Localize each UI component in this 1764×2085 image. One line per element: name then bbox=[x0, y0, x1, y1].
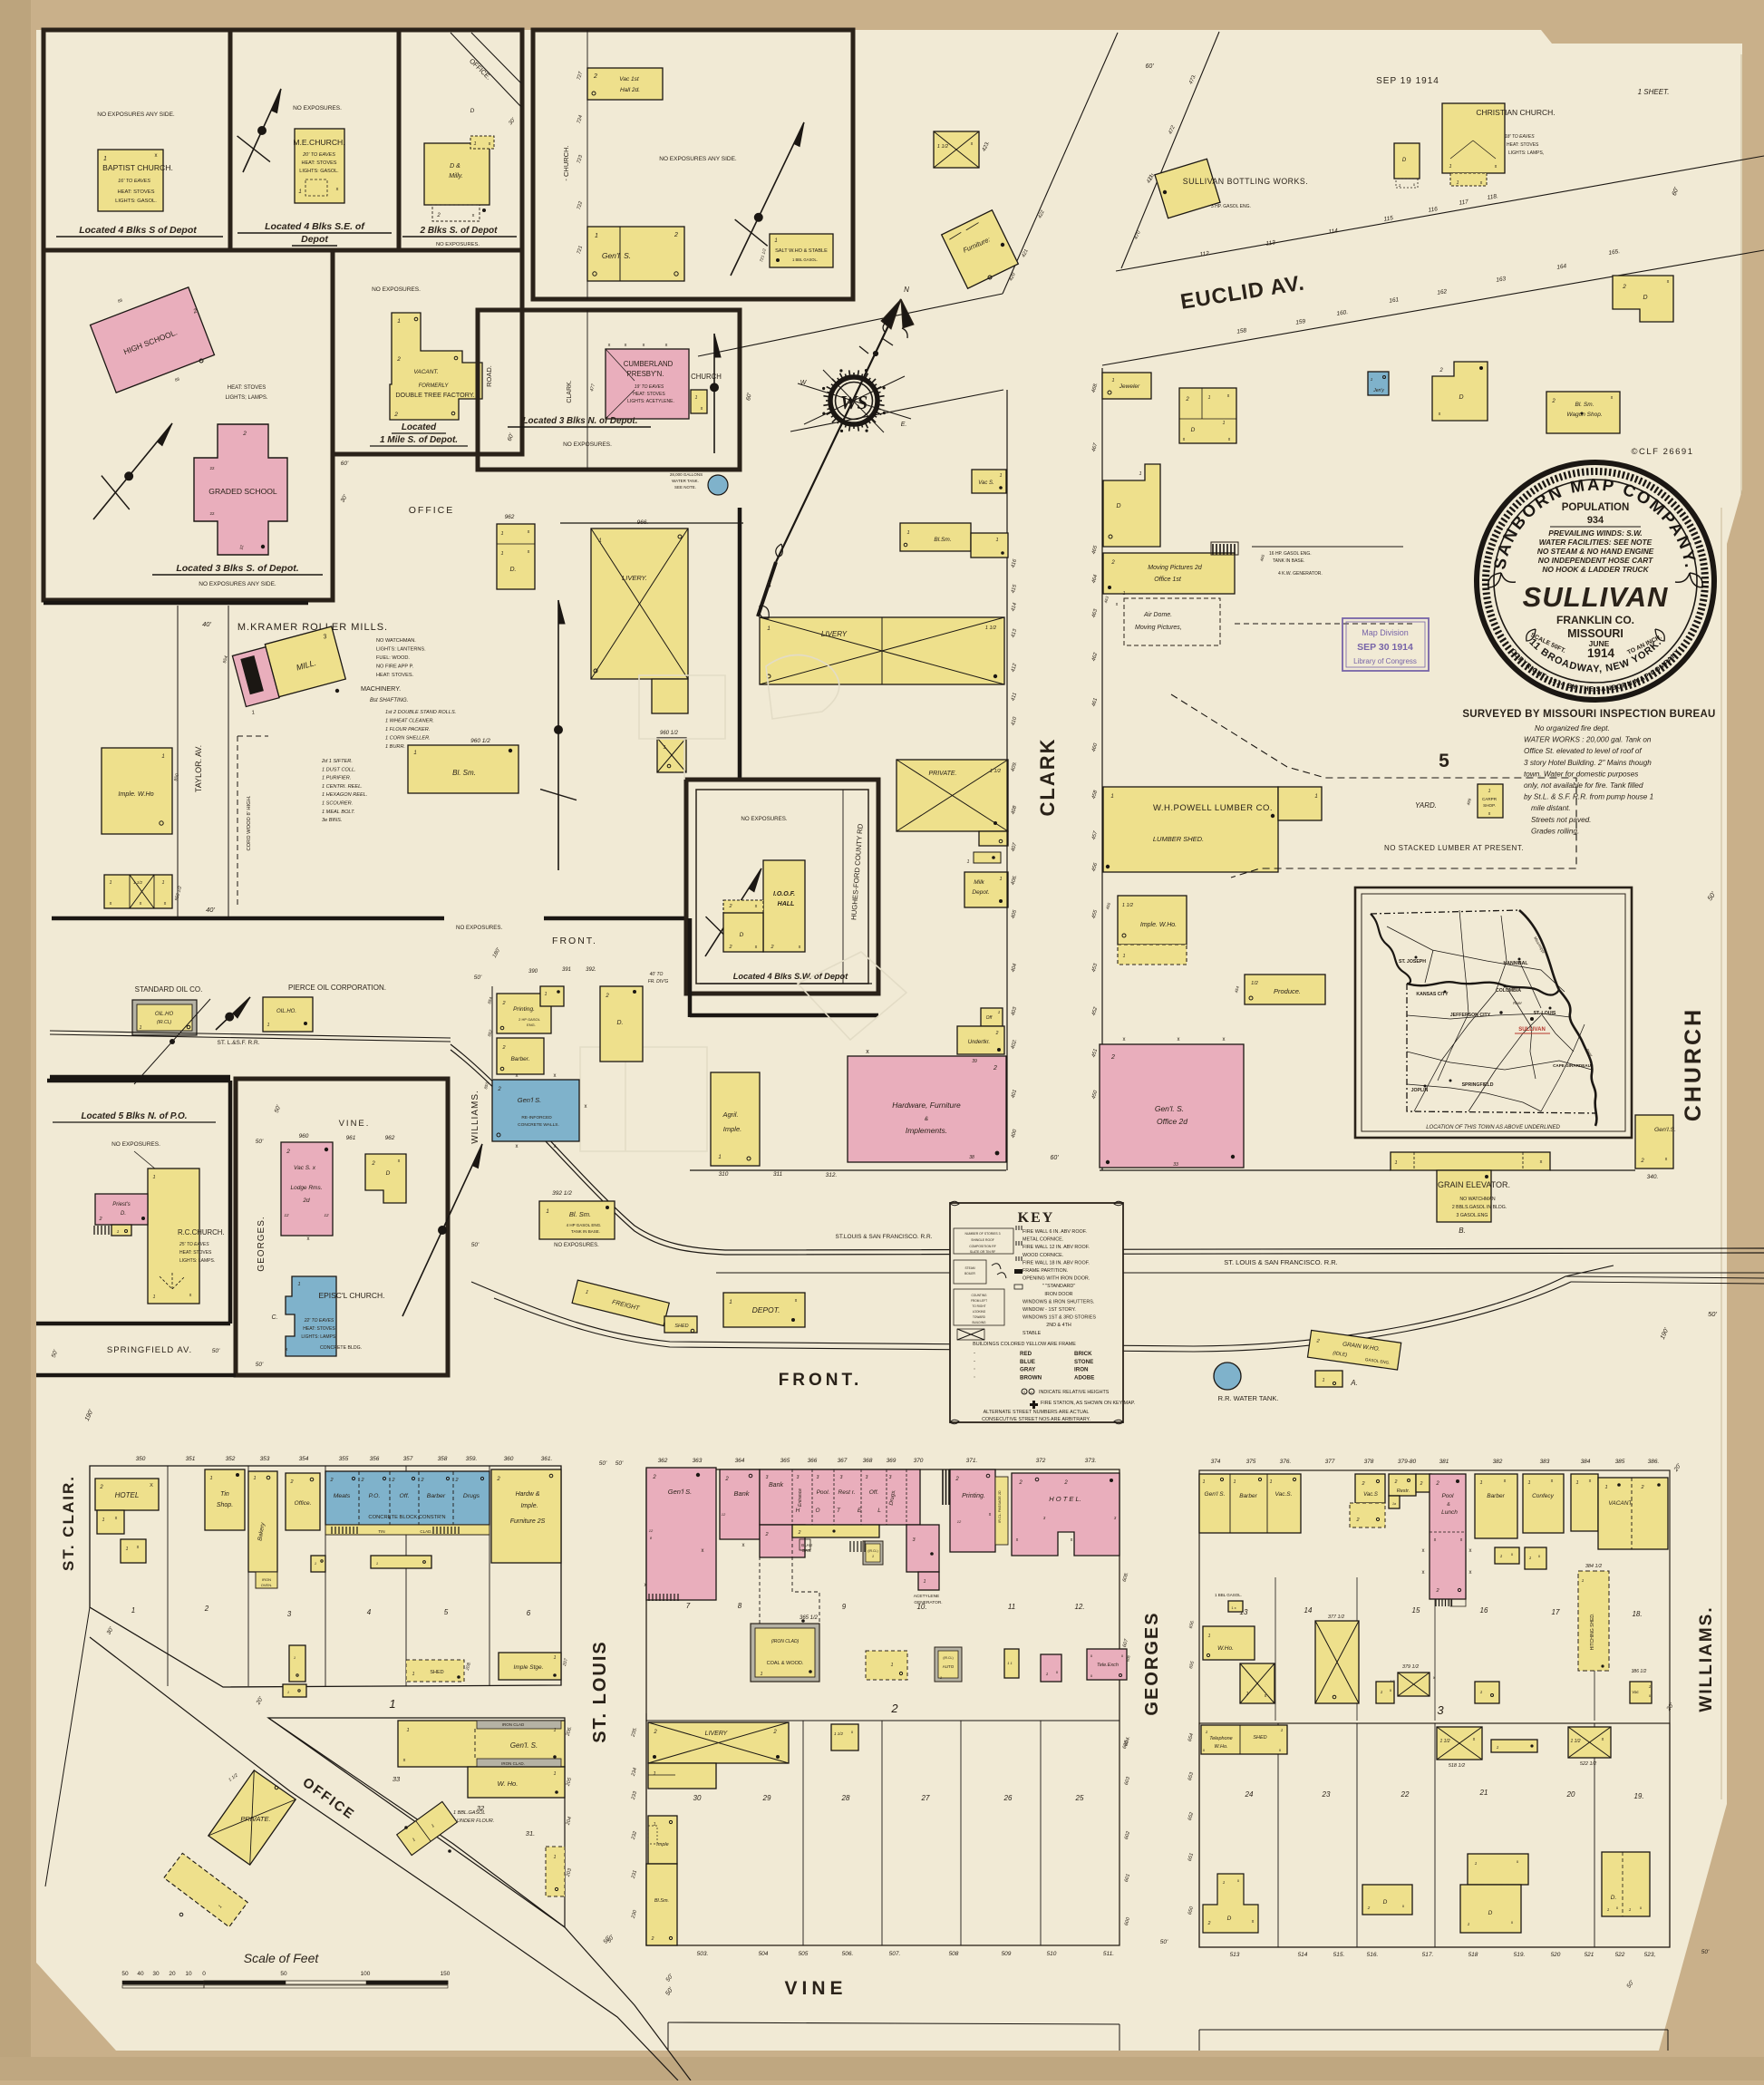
svg-text:384 1/2: 384 1/2 bbox=[1585, 1564, 1602, 1569]
svg-text:(IR.CL): (IR.CL) bbox=[943, 1656, 953, 1660]
svg-text:FRONT.: FRONT. bbox=[552, 936, 597, 946]
svg-text:YARD.: YARD. bbox=[1415, 801, 1437, 810]
svg-text:L: L bbox=[877, 1508, 881, 1514]
svg-text:Barber: Barber bbox=[1487, 1493, 1505, 1499]
svg-text:KEY: KEY bbox=[1018, 1210, 1055, 1226]
svg-text:386 1/2: 386 1/2 bbox=[1632, 1669, 1647, 1674]
svg-text:I.O.O.F.: I.O.O.F. bbox=[773, 891, 795, 897]
svg-text:10.: 10. bbox=[916, 1603, 926, 1611]
svg-text:R.R. WATER TANK.: R.R. WATER TANK. bbox=[1218, 1394, 1279, 1402]
svg-text:2: 2 bbox=[371, 1161, 375, 1167]
svg-text:4 K.W. GENERATOR.: 4 K.W. GENERATOR. bbox=[1278, 571, 1323, 577]
svg-text:5: 5 bbox=[1439, 751, 1449, 771]
svg-text:Vac.S: Vac.S bbox=[1363, 1492, 1378, 1498]
svg-text:Located 4 Blks S.E. of: Located 4 Blks S.E. of bbox=[265, 221, 365, 232]
svg-text:LIGHTS: LANTERNS.: LIGHTS: LANTERNS. bbox=[376, 647, 426, 653]
svg-text:LIGHTS: LAMPS.: LIGHTS: LAMPS. bbox=[179, 1258, 215, 1264]
svg-text:1: 1 bbox=[209, 1476, 212, 1481]
svg-text:D: D bbox=[1459, 394, 1463, 401]
svg-text:1: 1 bbox=[102, 1518, 105, 1523]
svg-text:1: 1 bbox=[663, 745, 665, 751]
svg-text:1 1/2: 1 1/2 bbox=[1570, 1739, 1580, 1744]
svg-text:1: 1 bbox=[131, 1606, 135, 1615]
svg-text:1: 1 bbox=[1479, 1480, 1482, 1486]
svg-text:50': 50' bbox=[1708, 1310, 1717, 1318]
svg-text:1: 1 bbox=[253, 1476, 256, 1481]
svg-text:508: 508 bbox=[949, 1951, 959, 1957]
svg-text:511.: 511. bbox=[1103, 1951, 1114, 1957]
svg-text:3: 3 bbox=[287, 1610, 292, 1618]
svg-text:1 WHEAT CLEANER.: 1 WHEAT CLEANER. bbox=[385, 719, 434, 724]
svg-text:IR.CL. PASSAGE 2D: IR.CL. PASSAGE 2D bbox=[998, 1490, 1002, 1523]
svg-text:STEAM: STEAM bbox=[965, 1266, 975, 1270]
svg-text:ALTERNATE STREET NUMBERS ARE A: ALTERNATE STREET NUMBERS ARE ACTUAL bbox=[984, 1410, 1090, 1415]
svg-text:SALT W.HO & STABLE: SALT W.HO & STABLE bbox=[775, 248, 828, 254]
svg-text:WINDOWS & IRON SHUTTERS.: WINDOWS & IRON SHUTTERS. bbox=[1023, 1299, 1094, 1304]
svg-text:1 HEXAGON REEL.: 1 HEXAGON REEL. bbox=[322, 792, 367, 798]
svg-text:509: 509 bbox=[1002, 1951, 1012, 1957]
svg-text:NO EXPOSURES.: NO EXPOSURES. bbox=[111, 1141, 160, 1148]
svg-text:1: 1 bbox=[761, 1672, 763, 1677]
svg-text:506.: 506. bbox=[842, 1951, 854, 1957]
svg-text:COAL & WOOD.: COAL & WOOD. bbox=[767, 1661, 804, 1666]
svg-text:310: 310 bbox=[719, 1171, 729, 1178]
svg-text:2: 2 bbox=[496, 1477, 500, 1482]
svg-text:NO EXPOSURES.: NO EXPOSURES. bbox=[554, 1243, 599, 1248]
svg-text:x: x bbox=[554, 1144, 557, 1149]
svg-text:3 HP. GASOL ENG.: 3 HP. GASOL ENG. bbox=[1211, 204, 1251, 209]
svg-text:20: 20 bbox=[1566, 1790, 1575, 1799]
svg-text:522: 522 bbox=[1615, 1952, 1625, 1958]
svg-text:BAPTIST CHURCH.: BAPTIST CHURCH. bbox=[102, 163, 173, 172]
svg-text:1: 1 bbox=[554, 1855, 557, 1860]
svg-text:Imple. W.Ho.: Imple. W.Ho. bbox=[1140, 922, 1177, 928]
svg-text:1: 1 bbox=[545, 992, 548, 997]
svg-text:6: 6 bbox=[527, 1609, 531, 1617]
svg-text:1: 1 bbox=[653, 1771, 655, 1777]
svg-text:INDICATE RELATIVE HEIGHTS: INDICATE RELATIVE HEIGHTS bbox=[1039, 1390, 1110, 1395]
svg-text:934: 934 bbox=[1587, 515, 1604, 526]
svg-text:W.Ho.: W.Ho. bbox=[1214, 1744, 1227, 1750]
svg-text:FRANKLIN CO.: FRANKLIN CO. bbox=[1556, 614, 1634, 626]
svg-text:CARPR: CARPR bbox=[1482, 797, 1497, 801]
svg-text:38: 38 bbox=[969, 1155, 974, 1160]
svg-text:x: x bbox=[155, 153, 158, 159]
svg-text:2: 2 bbox=[1018, 1480, 1023, 1486]
svg-text:FIRE WALL 6 IN. ABV ROOF.: FIRE WALL 6 IN. ABV ROOF. bbox=[1023, 1229, 1087, 1235]
svg-text:16: 16 bbox=[1480, 1606, 1488, 1615]
svg-text:1: 1 bbox=[774, 238, 777, 244]
svg-text:50': 50' bbox=[256, 1362, 264, 1368]
svg-text:Vac S. x: Vac S. x bbox=[294, 1165, 316, 1171]
svg-text:14: 14 bbox=[1304, 1606, 1313, 1615]
svg-text:22' TO EAVES: 22' TO EAVES bbox=[304, 1318, 334, 1324]
svg-text:Produce.: Produce. bbox=[1274, 987, 1301, 995]
svg-text:2: 2 bbox=[396, 356, 401, 363]
svg-text:503.: 503. bbox=[697, 1951, 709, 1957]
svg-text:Tin: Tin bbox=[220, 1491, 229, 1498]
svg-text:MISSOURI: MISSOURI bbox=[1567, 627, 1623, 640]
svg-text:LIGHTS: LAMPS,: LIGHTS: LAMPS, bbox=[1508, 150, 1544, 156]
svg-text:Streets not paved.: Streets not paved. bbox=[1531, 816, 1591, 824]
svg-text:Gen'l S.: Gen'l S. bbox=[518, 1096, 541, 1104]
svg-text:(IR.CL): (IR.CL) bbox=[867, 1549, 877, 1553]
svg-text:Milly.: Milly. bbox=[449, 173, 462, 179]
svg-text:1: 1 bbox=[297, 1282, 300, 1287]
svg-text:Located 4 Blks S of Depot: Located 4 Blks S of Depot bbox=[79, 225, 197, 236]
svg-text:2: 2 bbox=[593, 73, 597, 80]
svg-text:CONCRETE WALLS.: CONCRETE WALLS. bbox=[518, 1122, 559, 1128]
svg-text:D.: D. bbox=[510, 567, 517, 573]
svg-text:1: 1 bbox=[1110, 794, 1113, 800]
svg-text:3 GASOL.ENG: 3 GASOL.ENG bbox=[1457, 1213, 1488, 1218]
svg-text:1: 1 bbox=[546, 1209, 548, 1215]
svg-text:SPRINGFIELD: SPRINGFIELD bbox=[1462, 1082, 1494, 1088]
svg-text:370: 370 bbox=[914, 1458, 924, 1464]
svg-text:x: x bbox=[403, 1758, 406, 1763]
svg-text:LOOKING: LOOKING bbox=[973, 1310, 986, 1314]
svg-text:518 1/2: 518 1/2 bbox=[1449, 1763, 1465, 1769]
svg-text:361.: 361. bbox=[541, 1456, 553, 1462]
svg-text:371.: 371. bbox=[966, 1458, 978, 1464]
svg-text:D: D bbox=[1191, 427, 1196, 433]
svg-text:25: 25 bbox=[1075, 1794, 1084, 1802]
svg-text:Off.: Off. bbox=[869, 1489, 879, 1496]
svg-text:Bst SHAFTING.: Bst SHAFTING. bbox=[370, 698, 408, 703]
svg-text:Gen'l.S.: Gen'l.S. bbox=[1654, 1127, 1676, 1133]
svg-text:D.: D. bbox=[617, 1020, 624, 1026]
svg-text:40': 40' bbox=[202, 620, 211, 628]
svg-text:2: 2 bbox=[501, 1045, 505, 1051]
svg-text:ST. LOUIS: ST. LOUIS bbox=[590, 1640, 610, 1743]
svg-text:379 1/2: 379 1/2 bbox=[1402, 1664, 1419, 1670]
svg-text:2: 2 bbox=[1439, 368, 1443, 373]
svg-text:517.: 517. bbox=[1422, 1952, 1434, 1958]
svg-text:TOWARD: TOWARD bbox=[973, 1315, 986, 1319]
svg-text:Lodge Rms.: Lodge Rms. bbox=[290, 1185, 322, 1191]
svg-text:Jen'y: Jen'y bbox=[1372, 388, 1384, 393]
svg-text:1: 1 bbox=[967, 859, 970, 865]
svg-text:NO FIRE APP P.: NO FIRE APP P. bbox=[376, 664, 414, 670]
svg-text:GRADED SCHOOL: GRADED SCHOOL bbox=[208, 487, 277, 496]
svg-text:363: 363 bbox=[693, 1458, 703, 1464]
svg-text:2 HP GASOL: 2 HP GASOL bbox=[519, 1017, 540, 1022]
svg-text:1/2: 1/2 bbox=[1251, 981, 1258, 986]
svg-text:HEAT: STOVES: HEAT: STOVES bbox=[117, 189, 154, 195]
svg-text:D: D bbox=[1116, 503, 1120, 509]
svg-text:9: 9 bbox=[842, 1603, 847, 1611]
svg-text:TANK IN BASE.: TANK IN BASE. bbox=[571, 1229, 600, 1234]
svg-text:1: 1 bbox=[1457, 180, 1459, 186]
svg-text:505: 505 bbox=[799, 1951, 809, 1957]
svg-text:31.: 31. bbox=[526, 1829, 535, 1838]
svg-text:OIL.HO: OIL.HO bbox=[155, 1012, 174, 1017]
svg-text:" "STANDARD": " "STANDARD" bbox=[1042, 1284, 1076, 1289]
svg-text:2: 2 bbox=[995, 1031, 999, 1036]
svg-text:1: 1 bbox=[729, 1300, 732, 1305]
svg-text:Priest's: Priest's bbox=[112, 1202, 130, 1207]
svg-text:16' TO EAVES: 16' TO EAVES bbox=[118, 179, 150, 184]
svg-text:2: 2 bbox=[1355, 1518, 1359, 1523]
svg-text:522 1/2: 522 1/2 bbox=[1580, 1761, 1596, 1767]
svg-text:2: 2 bbox=[674, 232, 678, 238]
svg-text:KANSAS CITY: KANSAS CITY bbox=[1416, 992, 1449, 997]
svg-text:1: 1 bbox=[140, 1025, 142, 1031]
svg-text:x: x bbox=[1422, 1570, 1425, 1576]
svg-text:40: 40 bbox=[137, 1971, 144, 1977]
svg-text:1 PURIFIER.: 1 PURIFIER. bbox=[322, 776, 351, 781]
svg-text:Bl.Sm.: Bl.Sm. bbox=[654, 1898, 669, 1904]
svg-text:3 story Hotel Building. 2" Mai: 3 story Hotel Building. 2" Mains though bbox=[1524, 759, 1652, 767]
svg-text:SHED: SHED bbox=[674, 1324, 688, 1329]
svg-text:1914: 1914 bbox=[1587, 646, 1615, 660]
svg-text:NO STACKED LUMBER AT PRESENT.: NO STACKED LUMBER AT PRESENT. bbox=[1384, 844, 1524, 852]
svg-text:LUMBER SHED.: LUMBER SHED. bbox=[1153, 835, 1204, 843]
svg-text:S: S bbox=[766, 581, 771, 589]
svg-text:2: 2 bbox=[728, 904, 732, 909]
svg-text:GEORGES.: GEORGES. bbox=[257, 1216, 267, 1271]
svg-text:GRAIN ELEVATOR.: GRAIN ELEVATOR. bbox=[1438, 1180, 1510, 1189]
svg-text:Moving Pictures,: Moving Pictures, bbox=[1135, 625, 1182, 631]
svg-text:353: 353 bbox=[260, 1456, 270, 1462]
svg-text:LIVERY.: LIVERY. bbox=[622, 574, 647, 582]
svg-text:PRIVATE.: PRIVATE. bbox=[240, 1815, 270, 1823]
svg-text:27: 27 bbox=[921, 1794, 930, 1802]
svg-text:Barber: Barber bbox=[1239, 1493, 1257, 1499]
svg-text:1 SHEET.: 1 SHEET. bbox=[1638, 88, 1670, 96]
svg-text:518: 518 bbox=[1468, 1952, 1478, 1958]
svg-text:DEPOT.: DEPOT. bbox=[752, 1305, 780, 1314]
svg-text:40' TO: 40' TO bbox=[650, 972, 664, 977]
svg-text:HEAT: STOVES: HEAT: STOVES bbox=[633, 392, 665, 397]
svg-text:1 1/2: 1 1/2 bbox=[133, 880, 143, 885]
svg-text:961: 961 bbox=[346, 1135, 356, 1141]
svg-text:1: 1 bbox=[1323, 1378, 1325, 1383]
svg-text:960: 960 bbox=[299, 1133, 309, 1139]
svg-text:10: 10 bbox=[185, 1971, 192, 1977]
svg-text:O: O bbox=[815, 1508, 819, 1514]
svg-text:SHINGLE ROOF: SHINGLE ROOF bbox=[971, 1238, 994, 1242]
svg-text:LIVERY: LIVERY bbox=[821, 630, 848, 638]
svg-text:377: 377 bbox=[1325, 1459, 1335, 1465]
svg-text:360: 360 bbox=[504, 1456, 514, 1462]
svg-text:Vac S.: Vac S. bbox=[978, 480, 993, 486]
svg-text:x: x bbox=[1223, 1037, 1226, 1042]
svg-text:Hardware, Furniture: Hardware, Furniture bbox=[892, 1101, 961, 1110]
svg-text:FIRE WALL 18 IN. ABV ROOF.: FIRE WALL 18 IN. ABV ROOF. bbox=[1023, 1260, 1090, 1266]
svg-text:28: 28 bbox=[841, 1794, 850, 1802]
svg-text:1 SCOURER.: 1 SCOURER. bbox=[322, 801, 353, 807]
svg-text:1: 1 bbox=[598, 538, 601, 544]
svg-text:HEAT: STOVES: HEAT: STOVES bbox=[228, 385, 266, 391]
svg-text:18.: 18. bbox=[1632, 1610, 1642, 1618]
svg-text:1: 1 bbox=[1527, 1480, 1530, 1486]
svg-text:1: 1 bbox=[695, 395, 698, 401]
svg-text:x: x bbox=[516, 1073, 519, 1079]
svg-text:HEAT: STOVES.: HEAT: STOVES. bbox=[376, 673, 414, 678]
svg-text:x: x bbox=[307, 1236, 310, 1242]
svg-text:366: 366 bbox=[808, 1458, 818, 1464]
svg-text:12.: 12. bbox=[1074, 1603, 1084, 1611]
svg-text:2: 2 bbox=[1622, 284, 1626, 290]
svg-text:2: 2 bbox=[1367, 1906, 1371, 1910]
svg-text:BOILER: BOILER bbox=[964, 1272, 975, 1275]
svg-text:516.: 516. bbox=[1367, 1952, 1379, 1958]
svg-text:2ND & 4TH: 2ND & 4TH bbox=[1046, 1323, 1071, 1328]
svg-text:SLATE OR TIN RF: SLATE OR TIN RF bbox=[970, 1250, 995, 1254]
svg-text:22: 22 bbox=[209, 511, 215, 516]
svg-text:1: 1 bbox=[406, 1728, 409, 1733]
svg-text:Printing.: Printing. bbox=[962, 1493, 985, 1499]
svg-text:2: 2 bbox=[1435, 1481, 1439, 1487]
svg-text:2: 2 bbox=[653, 1730, 657, 1735]
svg-text:960 1/2: 960 1/2 bbox=[470, 738, 490, 744]
svg-text:SPRINGFIELD AV.: SPRINGFIELD AV. bbox=[107, 1345, 192, 1355]
svg-text:3: 3 bbox=[797, 1475, 800, 1480]
svg-text:24: 24 bbox=[1245, 1790, 1254, 1799]
svg-text:1: 1 bbox=[473, 141, 476, 147]
svg-text:30: 30 bbox=[152, 1971, 160, 1977]
svg-text:Located 3 Blks S. of Depot.: Located 3 Blks S. of Depot. bbox=[176, 563, 298, 574]
svg-text:R.C.CHURCH.: R.C.CHURCH. bbox=[178, 1228, 225, 1236]
svg-text:1: 1 bbox=[924, 1579, 926, 1585]
svg-text:1: 1 bbox=[267, 1023, 270, 1028]
svg-text:2: 2 bbox=[1185, 397, 1189, 402]
svg-text:2: 2 bbox=[798, 1530, 801, 1536]
svg-text:CHURCH: CHURCH bbox=[691, 373, 722, 381]
svg-text:FROM LEFT: FROM LEFT bbox=[971, 1299, 987, 1303]
svg-text:TANK IN BASE.: TANK IN BASE. bbox=[1273, 558, 1304, 564]
svg-text:LIVERY: LIVERY bbox=[705, 1731, 729, 1737]
svg-text:- CHURCH.: - CHURCH. bbox=[562, 145, 570, 180]
svg-text:Undertkr.: Undertkr. bbox=[968, 1040, 990, 1045]
svg-text:383: 383 bbox=[1540, 1459, 1550, 1465]
svg-text:100: 100 bbox=[361, 1971, 371, 1977]
svg-text:VACANT.: VACANT. bbox=[413, 369, 438, 375]
svg-text:River: River bbox=[1513, 1001, 1522, 1005]
svg-text:2: 2 bbox=[329, 1478, 333, 1483]
svg-text:Bank: Bank bbox=[769, 1482, 783, 1489]
svg-text:1: 1 bbox=[1111, 378, 1114, 383]
svg-text:SHOP.: SHOP. bbox=[1483, 803, 1496, 808]
svg-text:EPISC'L CHURCH.: EPISC'L CHURCH. bbox=[318, 1291, 384, 1300]
svg-text:2d 1 SIFTER.: 2d 1 SIFTER. bbox=[321, 759, 353, 764]
svg-text:ADOBE: ADOBE bbox=[1074, 1374, 1094, 1381]
svg-text:358: 358 bbox=[438, 1456, 448, 1462]
svg-text:Bl.Sm.: Bl.Sm. bbox=[934, 537, 951, 543]
svg-text:W.H.POWELL LUMBER CO.: W.H.POWELL LUMBER CO. bbox=[1153, 803, 1273, 813]
svg-text:P.O.: P.O. bbox=[369, 1493, 381, 1499]
svg-text:3: 3 bbox=[866, 1475, 868, 1480]
svg-text:2d: 2d bbox=[302, 1198, 310, 1204]
svg-text:PREVAILING WINDS: S.W.: PREVAILING WINDS: S.W. bbox=[1548, 529, 1642, 538]
svg-text:2: 2 bbox=[1315, 1338, 1320, 1344]
svg-text:RE-INFORCED: RE-INFORCED bbox=[521, 1115, 552, 1120]
svg-text:1: 1 bbox=[500, 551, 503, 557]
svg-text:513: 513 bbox=[1230, 1952, 1240, 1958]
svg-text:2: 2 bbox=[391, 1478, 394, 1483]
svg-text:ST. LOUIS & SAN FRANCISCO.: ST. LOUIS & SAN FRANCISCO. R.R. bbox=[1224, 1258, 1337, 1266]
svg-text:NO EXPOSURES.: NO EXPOSURES. bbox=[741, 816, 788, 822]
svg-text:Imple: Imple bbox=[656, 1842, 668, 1847]
svg-text:12: 12 bbox=[324, 1213, 329, 1217]
svg-text:Depot: Depot bbox=[301, 234, 328, 245]
svg-text:379-80: 379-80 bbox=[1398, 1459, 1417, 1465]
svg-text:60': 60' bbox=[1050, 1155, 1059, 1161]
svg-text:Vac 1st: Vac 1st bbox=[619, 76, 640, 82]
svg-text:50': 50' bbox=[212, 1348, 220, 1354]
svg-text:352: 352 bbox=[226, 1456, 236, 1462]
svg-text:1: 1 bbox=[554, 1655, 557, 1661]
svg-text:1 CENTRI. REEL.: 1 CENTRI. REEL. bbox=[322, 784, 363, 790]
svg-text:HOTEL: HOTEL bbox=[115, 1491, 140, 1499]
svg-text:(IR.CL): (IR.CL) bbox=[157, 1020, 171, 1025]
svg-text:2: 2 bbox=[1110, 1054, 1115, 1061]
svg-text:2: 2 bbox=[98, 1217, 102, 1222]
svg-text:2: 2 bbox=[1420, 1481, 1423, 1487]
svg-text:Bl. Sm.: Bl. Sm. bbox=[1575, 402, 1594, 408]
svg-text:960 1/2: 960 1/2 bbox=[660, 731, 679, 736]
svg-text:MACHINERY.: MACHINERY. bbox=[361, 684, 401, 693]
svg-text:1: 1 bbox=[906, 530, 909, 536]
svg-text:1 MEAL BOLT.: 1 MEAL BOLT. bbox=[322, 810, 355, 815]
svg-text:1: 1 bbox=[389, 1697, 395, 1711]
svg-text:C.: C. bbox=[272, 1314, 278, 1321]
svg-text:ST. LOUIS: ST. LOUIS bbox=[1534, 1011, 1556, 1016]
svg-text:Located 3 Blks N. of Depot.: Located 3 Blks N. of Depot. bbox=[523, 416, 638, 426]
svg-text:CLARK: CLARK bbox=[1036, 738, 1059, 817]
svg-text:50: 50 bbox=[121, 1971, 129, 1977]
svg-text:23: 23 bbox=[1322, 1790, 1331, 1799]
svg-text:NO EXPOSURES ANY SIDE.: NO EXPOSURES ANY SIDE. bbox=[659, 156, 737, 162]
svg-text:18' TO EAVES: 18' TO EAVES bbox=[1505, 134, 1535, 140]
svg-text:2: 2 bbox=[1361, 1481, 1364, 1487]
svg-text:1: 1 bbox=[595, 233, 598, 239]
svg-text:2: 2 bbox=[890, 1702, 898, 1715]
svg-text:2: 2 bbox=[1551, 399, 1556, 404]
svg-text:40': 40' bbox=[206, 906, 215, 914]
svg-text:1: 1 bbox=[1270, 1479, 1273, 1485]
svg-text:357: 357 bbox=[403, 1456, 413, 1462]
svg-text:AUTO: AUTO bbox=[943, 1664, 955, 1669]
svg-text:Located: Located bbox=[402, 422, 437, 432]
svg-text:Gen'l. S.: Gen'l. S. bbox=[1155, 1104, 1184, 1113]
svg-text:Wagon Shop.: Wagon Shop. bbox=[1566, 412, 1602, 418]
svg-text:x: x bbox=[1469, 1570, 1472, 1576]
svg-text:ENG.: ENG. bbox=[527, 1023, 536, 1027]
svg-text:OFFICE: OFFICE bbox=[409, 505, 455, 516]
svg-text:NO EXPOSURES.: NO EXPOSURES. bbox=[436, 242, 480, 247]
svg-text:BRICK: BRICK bbox=[1074, 1351, 1092, 1357]
svg-text:1: 1 bbox=[554, 1728, 557, 1733]
svg-text:Pool: Pool bbox=[1441, 1493, 1454, 1499]
svg-text:CONCRETE BLDG.: CONCRETE BLDG. bbox=[320, 1345, 362, 1351]
svg-text:20: 20 bbox=[169, 1971, 176, 1977]
svg-text:1: 1 bbox=[767, 625, 771, 632]
svg-text:Office 2d: Office 2d bbox=[1157, 1117, 1187, 1126]
svg-text:515.: 515. bbox=[1333, 1952, 1345, 1958]
svg-text:mile distant.: mile distant. bbox=[1531, 804, 1571, 812]
svg-text:COUNTING: COUNTING bbox=[972, 1294, 988, 1297]
svg-text:NO STEAM & NO HAND ENGINE: NO STEAM & NO HAND ENGINE bbox=[1537, 547, 1654, 556]
svg-text:ST.LOUIS & SAN FRANCISCO. R: ST.LOUIS & SAN FRANCISCO. R.R. bbox=[836, 1234, 933, 1240]
svg-text:Printing.: Printing. bbox=[513, 1006, 535, 1013]
svg-text:2: 2 bbox=[99, 1485, 103, 1490]
svg-text:WILLIAMS.: WILLIAMS. bbox=[470, 1090, 480, 1144]
svg-text:368: 368 bbox=[863, 1458, 873, 1464]
svg-text:D.: D. bbox=[121, 1211, 126, 1217]
svg-text:UNDER FLOUR.: UNDER FLOUR. bbox=[457, 1818, 494, 1824]
